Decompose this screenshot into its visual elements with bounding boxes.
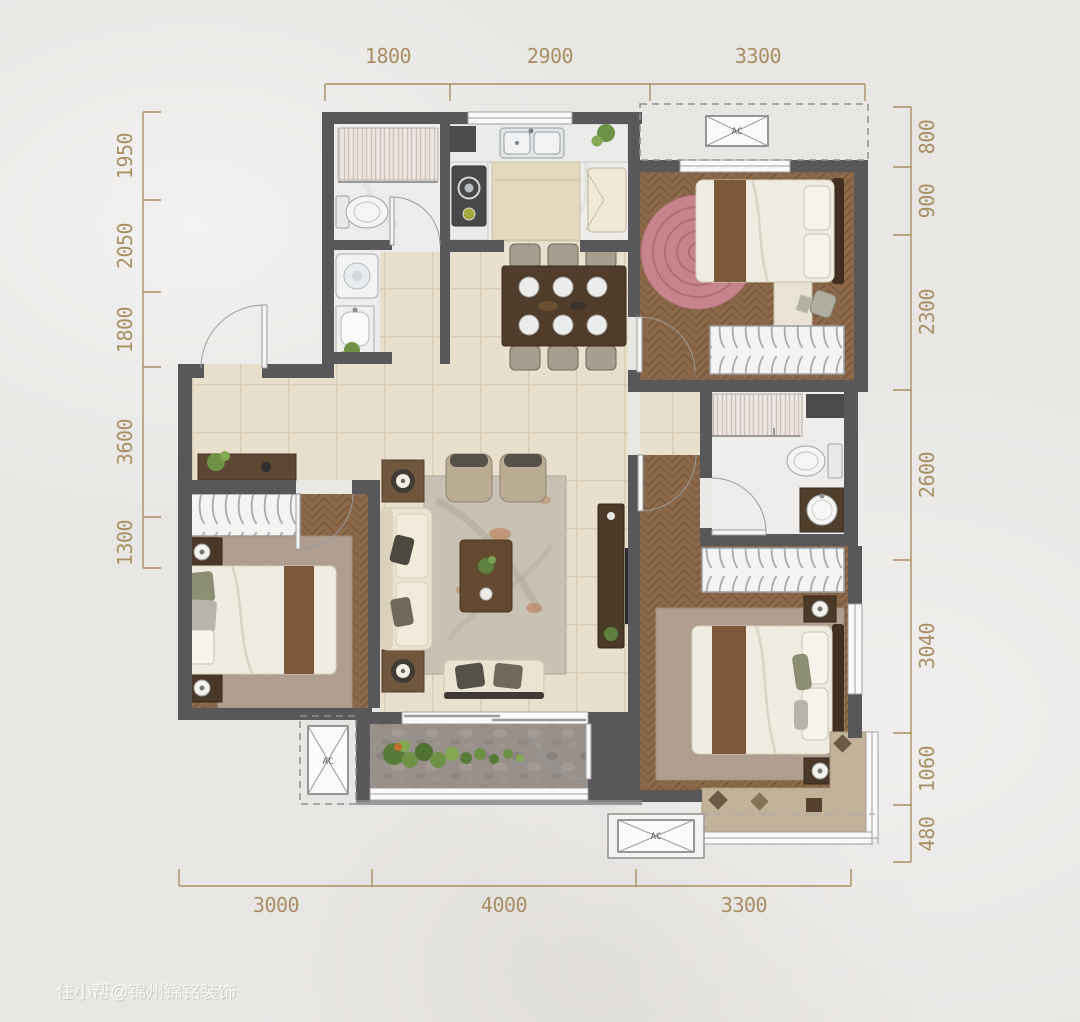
ac-unit-icon: AC [706, 116, 768, 146]
dim-bottom-3: 3300 [721, 893, 767, 917]
svg-text:住小帮@锦州锦铭装饰: 住小帮@锦州锦铭装饰 [56, 982, 236, 1002]
window [370, 788, 588, 800]
svg-text:AC: AC [732, 127, 743, 137]
bed [696, 178, 844, 284]
fridge-icon [586, 168, 626, 232]
wardrobe [702, 548, 844, 592]
dim-left-3: 1800 [113, 307, 137, 353]
dim-right-7: 480 [915, 817, 939, 852]
kitchen-island [492, 162, 580, 240]
floor-plan-page: 1800 2900 3300 3000 4000 3300 1950 2050 … [0, 0, 1080, 1022]
svg-text:AC: AC [651, 832, 662, 842]
toilet-icon [336, 196, 388, 228]
bench-seat [444, 660, 544, 699]
dining-table [502, 266, 626, 346]
dim-right-6: 1060 [915, 746, 939, 792]
dim-left-1: 1950 [113, 133, 137, 179]
shower-area [712, 394, 802, 436]
dimension-chain-left: 1950 2050 1800 3600 1300 [113, 112, 161, 568]
dim-top-3: 3300 [735, 44, 781, 68]
armchair [446, 454, 492, 502]
side-table-lamp [382, 460, 424, 502]
dim-right-3: 2300 [915, 289, 939, 335]
dim-right-2: 900 [915, 184, 939, 219]
passage-floor [640, 392, 700, 455]
room-kitchen [450, 124, 628, 240]
corridor-floor [640, 455, 700, 546]
dim-right-1: 800 [915, 120, 939, 155]
dim-left-4: 3600 [113, 419, 137, 465]
side-table-lamp [382, 650, 424, 692]
floor-plan-drawing: 1800 2900 3300 3000 4000 3300 1950 2050 … [0, 0, 1080, 1022]
ac-platform-bottom-middle: AC [608, 814, 704, 858]
entry-console-table [198, 451, 296, 480]
room-entry [198, 451, 296, 480]
bed [186, 566, 336, 674]
dim-top-2: 2900 [527, 44, 573, 68]
wardrobe [186, 494, 300, 536]
window [702, 832, 872, 844]
wardrobe [710, 326, 844, 374]
dim-right-5: 3040 [915, 623, 939, 669]
nightstand [804, 596, 836, 622]
ac-platform-top-right: AC [640, 104, 868, 160]
dim-right-4: 2600 [915, 452, 939, 498]
washing-machine-icon [336, 254, 378, 298]
dim-bottom-1: 3000 [253, 893, 299, 917]
entry-door [201, 305, 267, 368]
stove-icon [452, 166, 486, 226]
dimension-chain-bottom: 3000 4000 3300 [179, 869, 851, 917]
dimension-chain-top: 1800 2900 3300 [325, 44, 865, 101]
kitchen-sink-icon [500, 128, 564, 158]
window [866, 732, 878, 838]
shower-area [338, 128, 438, 180]
sliding-door-threshold [402, 712, 588, 724]
ac-unit-icon: AC [308, 726, 348, 794]
room-dining [502, 244, 626, 370]
svg-text:AC: AC [323, 757, 334, 767]
coffee-table [460, 540, 512, 612]
watermark: 住小帮@锦州锦铭装饰 住小帮@锦州锦铭装饰 [56, 982, 237, 1003]
dim-left-5: 1300 [113, 520, 137, 566]
window [848, 604, 862, 694]
window [468, 112, 572, 124]
armchair [500, 454, 546, 502]
ac-platform-bottom-left: AC [300, 716, 356, 804]
bed [692, 624, 844, 756]
toilet-icon [787, 444, 842, 478]
vanity-sink-icon [800, 488, 844, 532]
dim-top-1: 1800 [365, 44, 411, 68]
dimension-chain-right: 800 900 2300 2600 3040 1060 480 [893, 107, 939, 862]
bath-cabinet [806, 394, 844, 418]
dim-bottom-2: 4000 [481, 893, 527, 917]
window [680, 160, 790, 172]
ac-unit-icon: AC [618, 820, 694, 852]
desk [774, 282, 812, 328]
dim-left-2: 2050 [113, 223, 137, 269]
sofa [380, 508, 432, 650]
